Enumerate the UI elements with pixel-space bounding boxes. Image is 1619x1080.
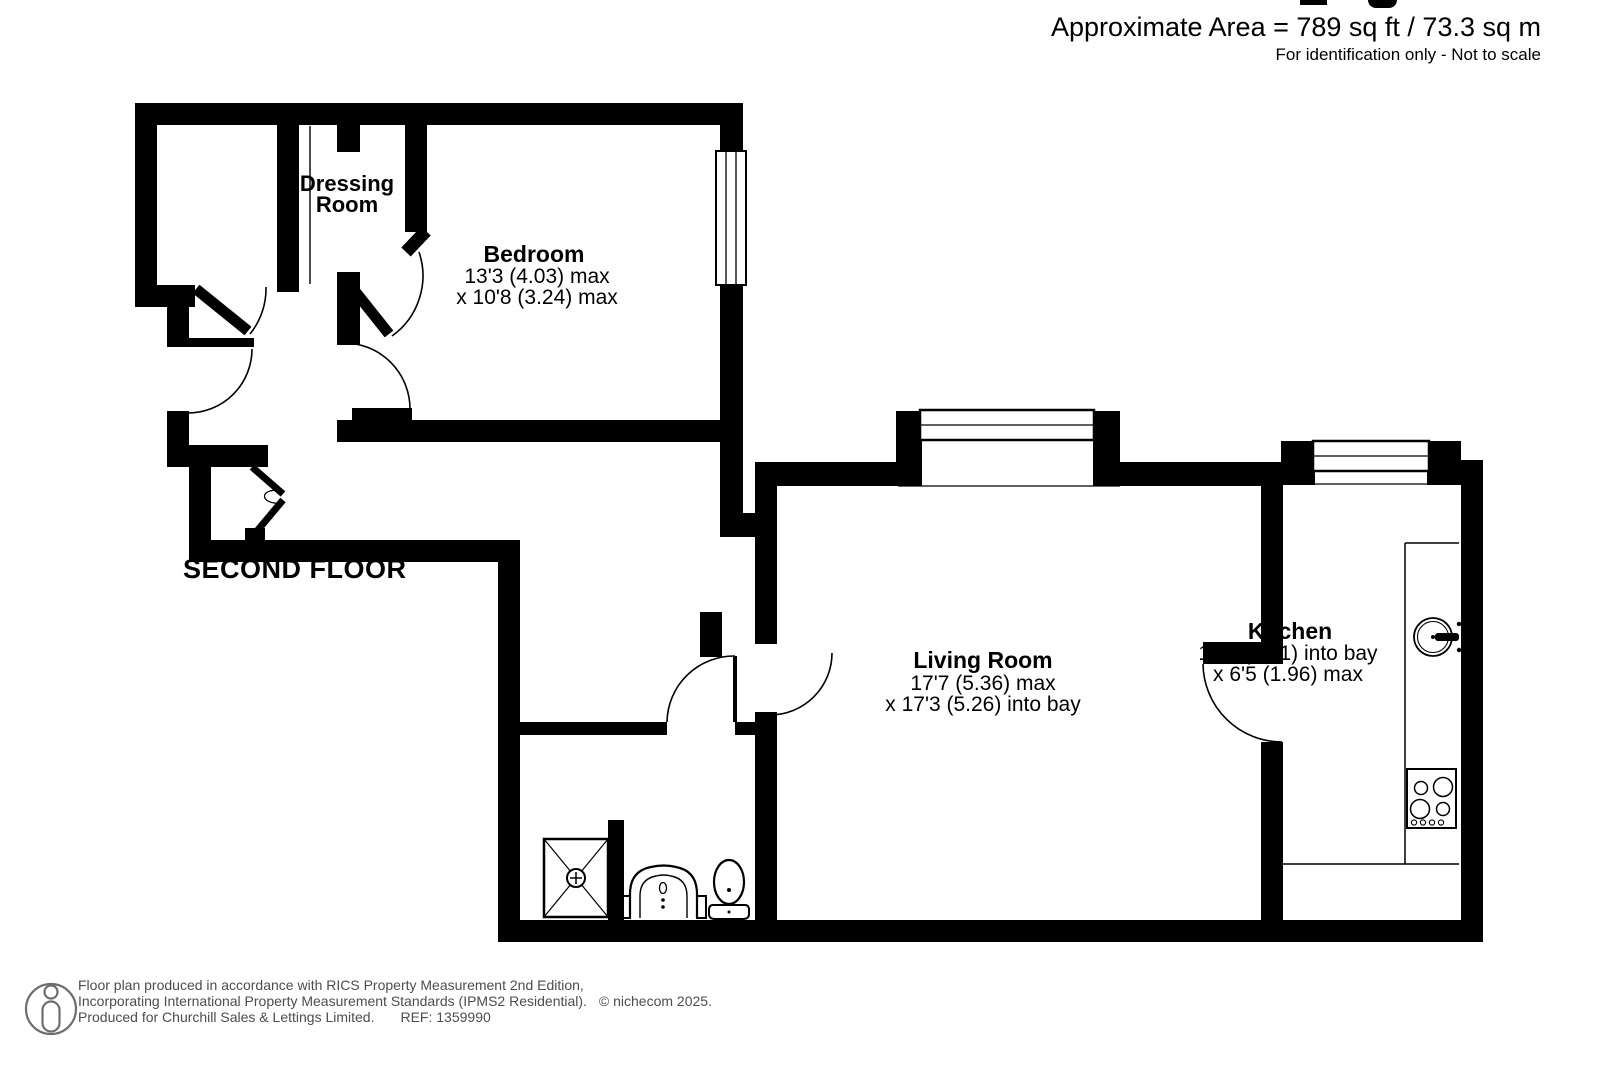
wall-top: [135, 103, 743, 125]
kitchen-fixtures: [1407, 618, 1461, 828]
living-room-dimensions: x 17'3 (5.26) into bay: [885, 693, 1081, 716]
bedroom-door-arc: [343, 343, 410, 410]
nichecom-person-logo-icon: [24, 977, 80, 1043]
bedroom-window: [716, 151, 746, 285]
wall-bathroom-left: [498, 540, 520, 942]
logo-head: [45, 986, 58, 999]
kitchen-label: Kitchen: [1248, 618, 1332, 644]
bedroom-door-leaf: [352, 408, 412, 420]
dressing-door-jamb: [406, 231, 426, 252]
toilet-icon: [714, 860, 744, 904]
walls: [135, 103, 1483, 942]
bathroom-fixtures: [544, 839, 749, 919]
footer-line-3: Produced for Churchill Sales & Lettings …: [78, 1009, 712, 1025]
windows: [716, 151, 1429, 486]
living-room-door-arc: [770, 653, 832, 715]
bedroom-dimensions: x 10'8 (3.24) max: [456, 286, 618, 309]
wall-kitchen-left-lower: [1261, 742, 1283, 922]
basin-drain-dot: [661, 898, 665, 902]
wall-step-h: [135, 285, 195, 307]
wall-cupboard-partition: [178, 338, 254, 347]
wall-dressing-top-stub: [337, 125, 360, 152]
logo-body: [43, 1002, 60, 1032]
bifold-door-panel: [252, 500, 283, 537]
wall-kitchen-bay-left: [1281, 441, 1315, 485]
bathroom-door-arc: [667, 656, 735, 722]
kitchen-tap-handle: [1457, 622, 1461, 626]
living-room-dimensions: 17'7 (5.36) max: [910, 672, 1056, 695]
bedroom-label: Bedroom: [484, 241, 585, 267]
basin-bracket: [697, 896, 706, 918]
wall-bottom: [498, 920, 1483, 942]
wall-living-top-right: [1118, 462, 1263, 486]
wall-bedroom-right: [720, 283, 743, 537]
basin-drain-dot: [661, 905, 665, 909]
wall-living-top-left: [755, 462, 900, 486]
copyright-text: © nichecom 2025.: [599, 993, 712, 1009]
footer-line-2-text: Incorporating International Property Mea…: [78, 993, 587, 1009]
wall-corridor-stub: [700, 612, 722, 657]
toilet-dot: [727, 888, 731, 892]
wall-bedroom-bottom: [337, 420, 743, 442]
dressing-room-label: Room: [316, 192, 378, 217]
living-room-label: Living Room: [913, 647, 1052, 673]
cupboard-door-arc: [250, 287, 266, 334]
wall-bathroom-living: [755, 712, 777, 942]
bedroom-dimensions: 13'3 (4.03) max: [464, 265, 610, 288]
kitchen-sink-drain: [1431, 635, 1435, 639]
kitchen-tap-handle: [1457, 648, 1461, 652]
entrance-door-arc: [188, 349, 252, 413]
wall-closet-left: [189, 467, 211, 540]
reference-number: REF: 1359990: [400, 1009, 490, 1025]
wall-bathroom-top: [520, 722, 667, 735]
floorplan-drawing: SECOND FLOOR Dressing Room Bedroom 13'3 …: [0, 0, 1619, 1080]
floor-label: SECOND FLOOR: [183, 554, 407, 584]
wall-bathroom-top-stub: [735, 722, 762, 735]
hob-icon: [1407, 769, 1456, 828]
footer: Floor plan produced in accordance with R…: [78, 977, 712, 1025]
floorplan-page: Approximate Area = 789 sq ft / 73.3 sq m…: [0, 0, 1619, 1080]
dressing-door-arc: [392, 252, 423, 336]
wall-left-upper: [135, 103, 157, 307]
cupboard-door-leaf: [196, 289, 248, 331]
wall-living-bay-left: [896, 411, 922, 486]
wall-dressing-right: [405, 125, 427, 232]
footer-line-3-text: Produced for Churchill Sales & Lettings …: [78, 1009, 374, 1025]
wall-corridor-living: [755, 462, 777, 644]
footer-line-2: Incorporating International Property Mea…: [78, 993, 712, 1009]
kitchen-dimensions: 16'1 (4.91) into bay: [1198, 642, 1378, 665]
logo-circle: [26, 984, 76, 1034]
wall-kitchen-bay-right: [1427, 441, 1461, 485]
wall-left-lower: [167, 411, 189, 467]
wall-dressing-left: [277, 125, 299, 292]
footer-line-1: Floor plan produced in accordance with R…: [78, 977, 712, 993]
toilet-base-dot: [728, 911, 731, 914]
room-labels: SECOND FLOOR Dressing Room Bedroom 13'3 …: [183, 171, 1378, 716]
wall-living-bay-right: [1093, 411, 1120, 486]
wall-right: [1461, 460, 1483, 942]
kitchen-dimensions: x 6'5 (1.96) max: [1213, 663, 1363, 686]
wall-bedroom-right-top: [720, 125, 743, 153]
kitchen-tap-icon: [1435, 633, 1459, 641]
